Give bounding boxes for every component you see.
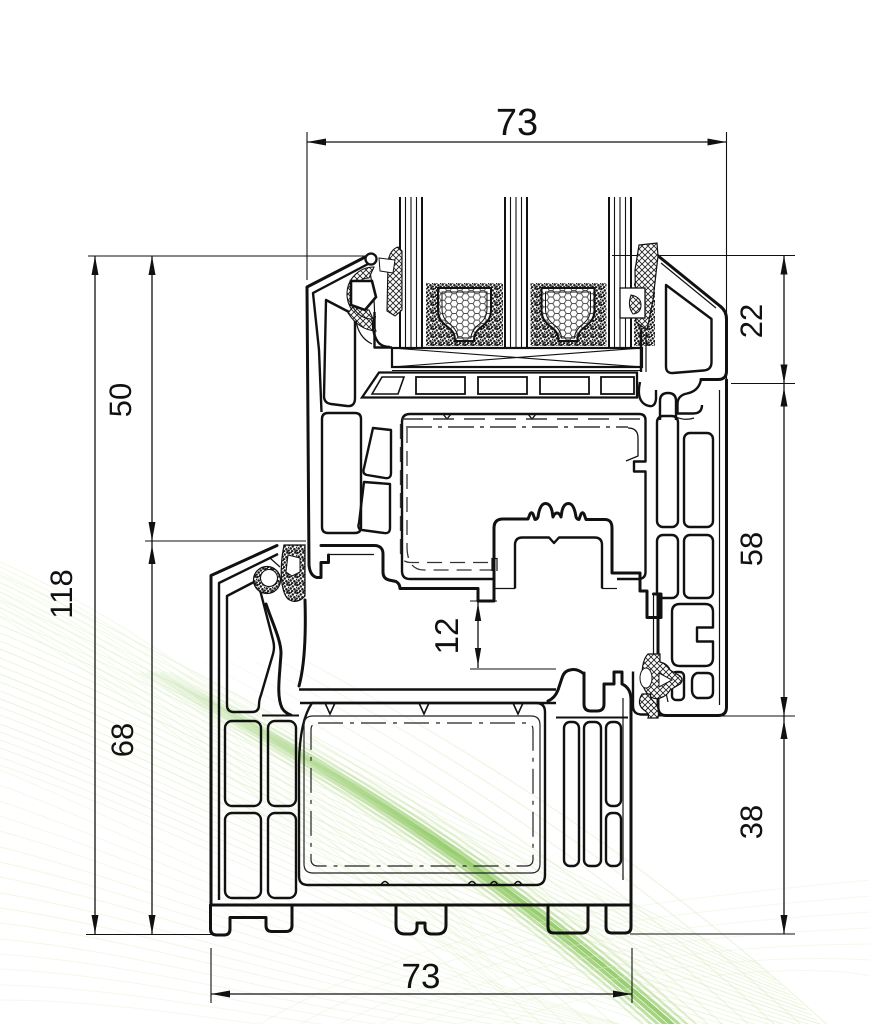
svg-text:38: 38	[734, 805, 769, 839]
svg-text:58: 58	[734, 532, 769, 566]
svg-text:73: 73	[402, 957, 441, 996]
svg-text:68: 68	[105, 723, 140, 757]
svg-text:73: 73	[496, 102, 538, 144]
svg-text:12: 12	[428, 618, 465, 655]
svg-text:22: 22	[734, 304, 769, 338]
svg-text:50: 50	[103, 383, 138, 417]
svg-text:118: 118	[44, 569, 79, 618]
